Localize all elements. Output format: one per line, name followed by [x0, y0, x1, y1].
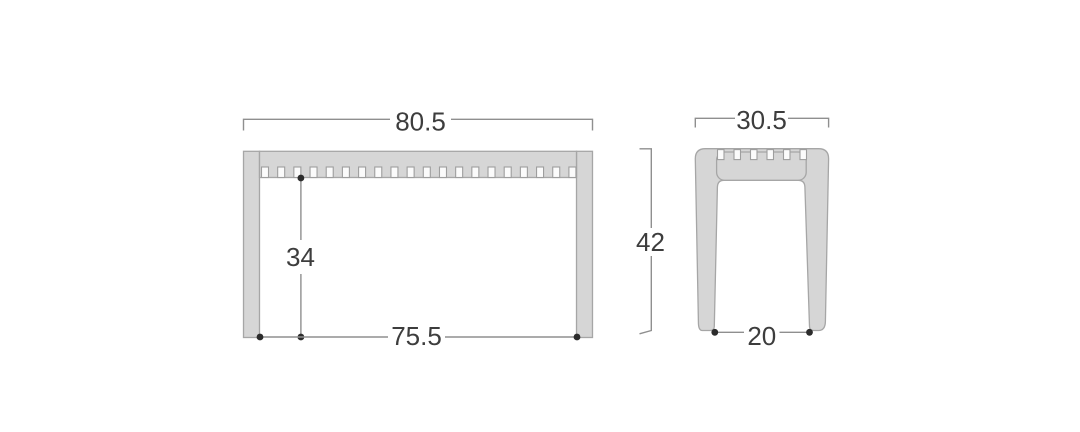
side-depth-dimension: 30.5 — [695, 105, 828, 135]
slat-notch — [456, 167, 463, 178]
slat-notch — [767, 150, 774, 160]
slat-notch — [310, 167, 317, 178]
slat-notch — [569, 167, 576, 178]
slat-notch — [391, 167, 398, 178]
slat-notch — [718, 150, 725, 160]
slat-notch — [537, 167, 544, 178]
front-right-leg — [577, 151, 593, 337]
slat-notch — [784, 150, 791, 160]
side-inner-width-left-dot — [711, 329, 718, 336]
front-view: 80.5 34 75.5 — [244, 107, 593, 352]
front-width-label: 80.5 — [395, 107, 446, 137]
front-inner-height-label: 34 — [286, 242, 315, 272]
slat-notch — [520, 167, 527, 178]
slat-notch — [375, 167, 382, 178]
slat-notch — [359, 167, 366, 178]
side-depth-label: 30.5 — [736, 105, 787, 135]
front-left-leg — [244, 151, 260, 337]
slat-notch — [326, 167, 333, 178]
slat-notch — [800, 150, 807, 160]
side-inner-width-dimension: 20 — [711, 321, 813, 351]
slat-notch — [472, 167, 479, 178]
slat-notch — [262, 167, 269, 178]
slat-notch — [407, 167, 414, 178]
front-top-rail — [260, 151, 577, 177]
side-height-label: 42 — [636, 227, 665, 257]
slat-notch — [342, 167, 349, 178]
front-inner-height-top-dot — [298, 175, 305, 182]
side-top-rail — [717, 152, 807, 180]
side-height-dimension: 42 — [636, 149, 665, 334]
slat-notch — [734, 150, 741, 160]
front-inner-width-left-dot — [257, 334, 264, 341]
side-inner-width-right-dot — [806, 329, 813, 336]
slat-notch — [278, 167, 285, 178]
front-width-dimension: 80.5 — [244, 107, 593, 137]
front-inner-width-label: 75.5 — [391, 321, 442, 351]
side-inner-width-label: 20 — [747, 321, 776, 351]
front-inner-width-right-dot — [574, 334, 581, 341]
slat-notch — [553, 167, 560, 178]
slat-notch — [423, 167, 430, 178]
diagram-svg: 80.5 34 75.5 — [0, 0, 1080, 432]
furniture-dimension-diagram: 80.5 34 75.5 — [0, 0, 1080, 432]
front-inner-width-dimension: 75.5 — [257, 321, 581, 351]
slat-notch — [504, 167, 511, 178]
front-inner-height-dimension: 34 — [286, 175, 315, 341]
slat-notch — [751, 150, 758, 160]
slat-notch — [439, 167, 446, 178]
slat-notch — [488, 167, 495, 178]
side-view: 30.5 42 20 — [636, 105, 829, 351]
